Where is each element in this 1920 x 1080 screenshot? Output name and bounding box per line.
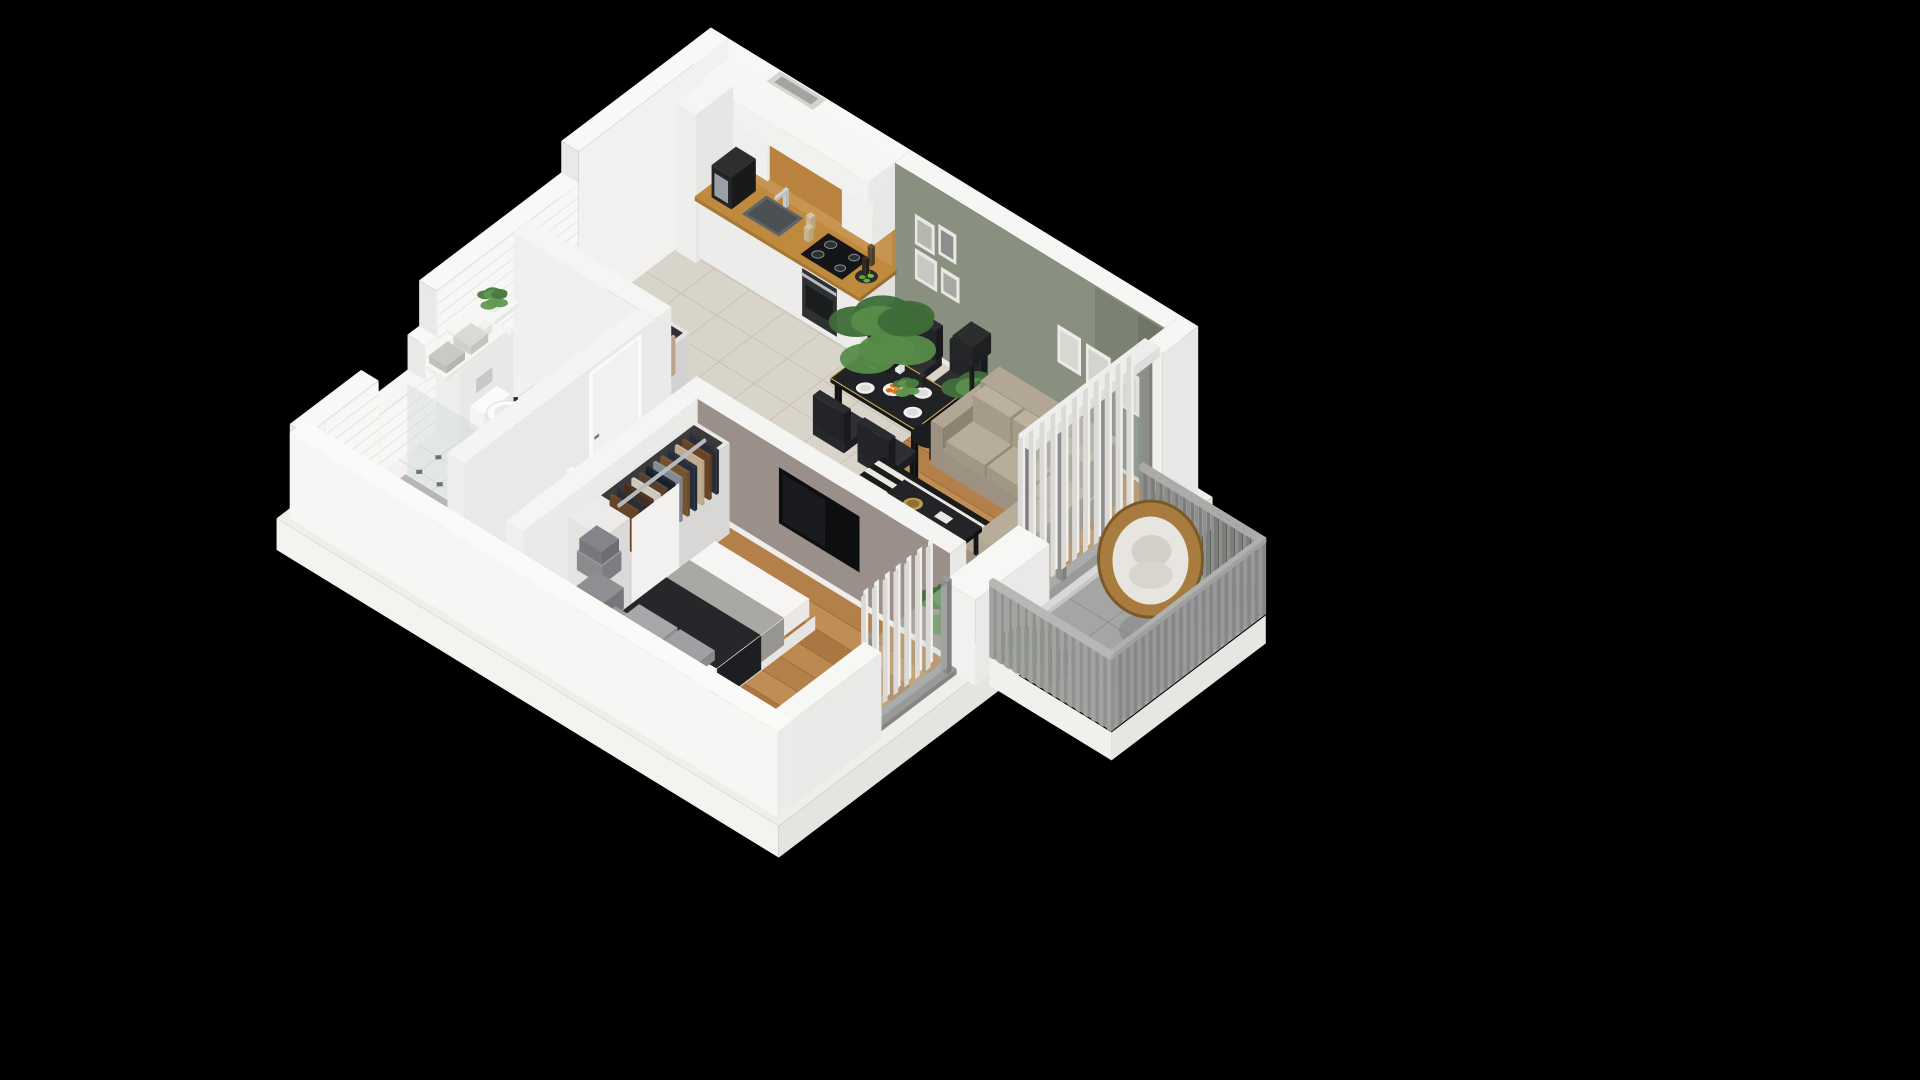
isometric-scene — [0, 0, 1920, 1080]
apartment-floorplan-render — [0, 0, 1920, 1080]
